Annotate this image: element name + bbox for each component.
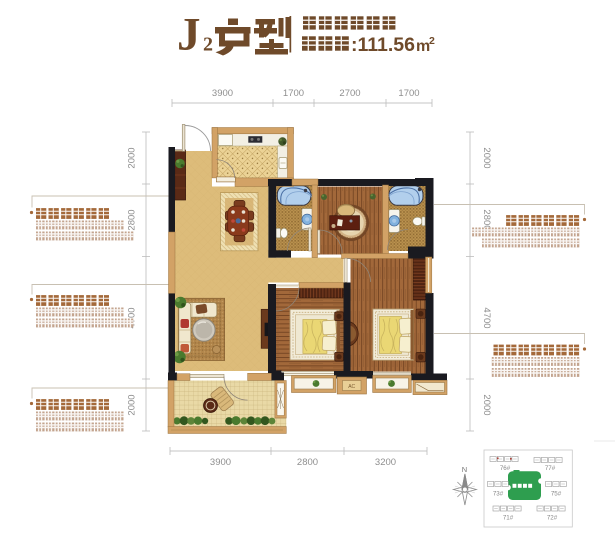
svg-text:71#: 71#	[503, 515, 514, 522]
svg-text:72#: 72#	[547, 515, 558, 522]
svg-text:2: 2	[429, 35, 435, 47]
svg-text:2800: 2800	[297, 457, 318, 468]
svg-text:4700: 4700	[481, 307, 492, 328]
svg-text:J: J	[177, 9, 201, 61]
svg-text:2000: 2000	[127, 394, 138, 415]
svg-text:3900: 3900	[210, 457, 231, 468]
svg-text:2800: 2800	[127, 209, 138, 230]
svg-text:2800: 2800	[481, 209, 492, 230]
svg-text:2000: 2000	[127, 147, 138, 168]
svg-text:77#: 77#	[545, 465, 556, 472]
svg-text::111.56: :111.56	[351, 34, 415, 56]
svg-text:AC: AC	[348, 384, 355, 390]
svg-text:3900: 3900	[212, 88, 233, 99]
svg-text:1700: 1700	[398, 88, 419, 99]
svg-text:2000: 2000	[481, 394, 492, 415]
svg-text:1700: 1700	[283, 88, 304, 99]
svg-text:75#: 75#	[551, 491, 562, 498]
svg-text:3200: 3200	[375, 457, 396, 468]
svg-text:2700: 2700	[339, 88, 360, 99]
svg-text:2000: 2000	[481, 147, 492, 168]
svg-text:73#: 73#	[493, 491, 504, 498]
svg-text:76#: 76#	[500, 465, 511, 472]
svg-text:N: N	[462, 465, 467, 474]
svg-text:2: 2	[203, 34, 213, 56]
